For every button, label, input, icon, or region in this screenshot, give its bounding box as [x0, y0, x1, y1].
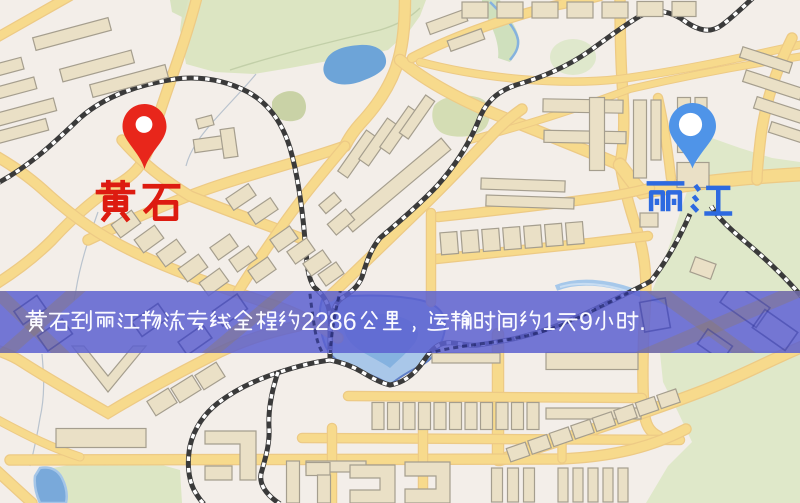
svg-text:1: 1: [542, 308, 556, 336]
svg-text:2286: 2286: [301, 308, 357, 336]
svg-text:.: .: [639, 308, 646, 336]
svg-text:9: 9: [579, 308, 593, 336]
